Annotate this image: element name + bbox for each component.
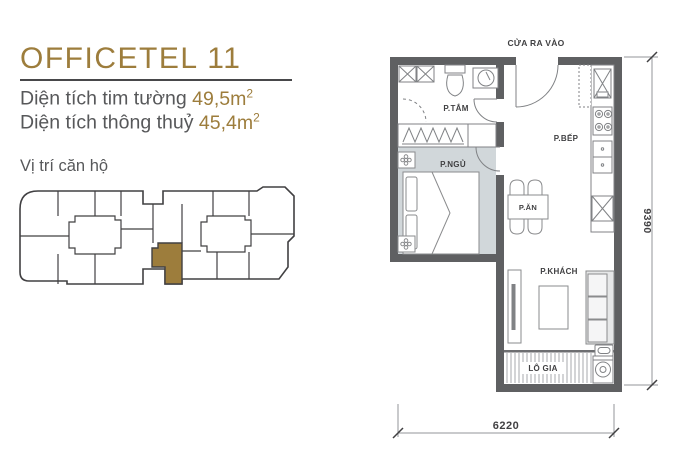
- location-label: Vị trí căn hộ: [20, 157, 108, 176]
- area-gross-value: 49,5m2: [192, 88, 253, 110]
- room-label-living: P.KHÁCH: [540, 267, 578, 276]
- stove-icon: [593, 107, 612, 135]
- room-label-dining: P.ĂN: [519, 203, 537, 212]
- wardrobe-icon: [398, 124, 496, 147]
- area-net-line: Diện tích thông thuỷ 45,4m2: [20, 110, 260, 135]
- cabinet-icon: [399, 66, 434, 82]
- dimension-height: 9390: [641, 208, 653, 233]
- area-net-label: Diện tích thông thuỷ: [20, 112, 193, 134]
- dimension-width: 6220: [493, 420, 519, 432]
- entrance-door-swing-icon: [516, 65, 558, 107]
- building-location-map: [17, 184, 297, 302]
- loggia: LÔ GIA: [504, 345, 614, 383]
- entrance-label: CỬA RA VÀO: [507, 37, 564, 48]
- bathroom-fixtures: [399, 65, 498, 122]
- washer-icon: [593, 356, 613, 383]
- left-core: [69, 216, 121, 254]
- unit-floorplan: P.TẮM P.NGỦ CỬA RA VÀO: [380, 25, 675, 450]
- sink-icon: [473, 68, 498, 88]
- kitchen-sink-icon: [594, 69, 611, 98]
- counter-appliance-icon: [592, 196, 613, 221]
- ac-unit-icon: [595, 345, 613, 356]
- door-swing-icon: [474, 99, 497, 122]
- room-label-kitchen: P.BẾP: [554, 133, 579, 143]
- floorplan-page: OFFICETEL 11 Diện tích tim tường 49,5m2 …: [0, 0, 675, 450]
- room-label-bedroom: P.NGỦ: [440, 160, 466, 169]
- shower-swing-icon: [403, 99, 426, 122]
- living-furniture: [508, 270, 614, 344]
- area-gross-label: Diện tích tim tường: [20, 88, 187, 110]
- unit-title: OFFICETEL 11: [20, 44, 241, 74]
- coffee-table-icon: [539, 286, 568, 329]
- highlighted-unit: [152, 243, 182, 284]
- right-core: [201, 216, 251, 252]
- toilet-icon: [445, 65, 465, 96]
- sofa-icon: [586, 271, 614, 344]
- title-underline: [20, 79, 292, 81]
- tv-console-icon: [508, 270, 521, 343]
- area-gross-line: Diện tích tim tường 49,5m2: [20, 86, 253, 111]
- base-cabinet-icon: [593, 141, 612, 173]
- room-label-loggia: LÔ GIA: [528, 364, 557, 373]
- room-label-bathroom: P.TẮM: [443, 104, 468, 113]
- kitchen-counter: [579, 65, 614, 232]
- area-net-value: 45,4m2: [199, 112, 260, 134]
